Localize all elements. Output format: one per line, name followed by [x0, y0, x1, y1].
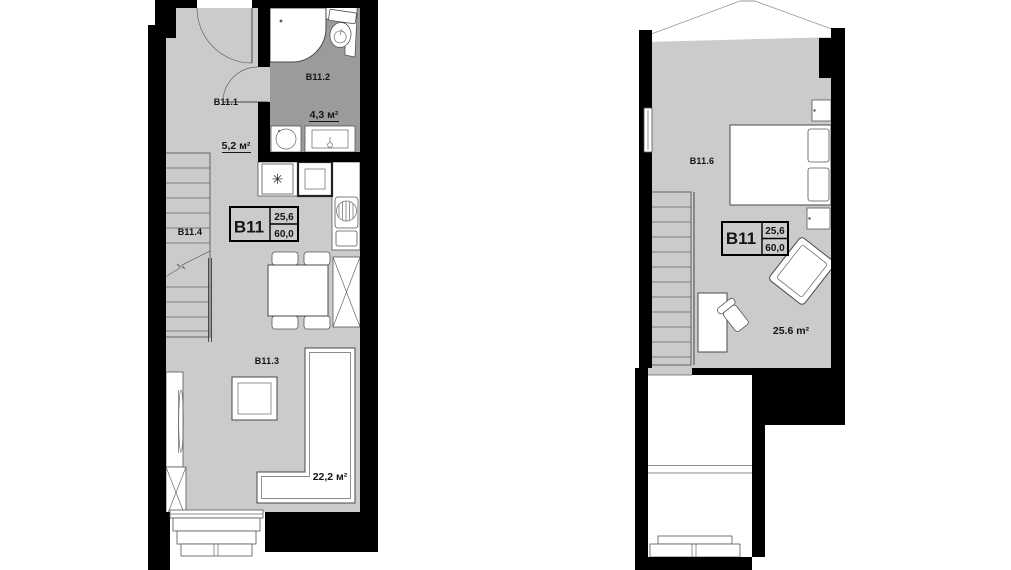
bed	[730, 125, 831, 205]
unit-area-value: 25,6	[274, 212, 294, 223]
bathroom-door-threshold	[258, 67, 270, 102]
unit-total-value: 60,0	[274, 229, 294, 240]
lower-floor-plan: ✳	[148, 0, 378, 570]
unit-card: B11 25,6 60,0	[230, 207, 298, 241]
desk	[698, 293, 727, 352]
kitchen-appliance	[298, 162, 332, 196]
chair	[304, 252, 330, 265]
window	[644, 108, 652, 152]
fridge-cabinet	[333, 257, 360, 327]
floor-strip	[648, 365, 692, 375]
room-label-b11-1: B11.1	[214, 97, 239, 107]
room-area-b11-6: 25.6 m²	[773, 325, 810, 337]
unit-total-value: 60,0	[765, 243, 785, 254]
stove-burner-icon: ✳	[272, 171, 284, 187]
entrance-steps	[650, 536, 740, 557]
pillow	[808, 129, 829, 162]
roof-slope-lines	[646, 1, 837, 36]
dining-table	[268, 265, 328, 316]
chair	[272, 316, 298, 329]
upper-floor-plan: B11 25,6 60,0 B11.6 25.6 m²	[635, 0, 845, 570]
pillow	[808, 168, 829, 201]
room-area-b11-2: 4,3 м²	[310, 109, 339, 121]
unit-card: B11 25,6 60,0	[722, 222, 788, 255]
room-area-b11-3: 22,2 м²	[313, 471, 348, 483]
room-label-b11-6: B11.6	[690, 156, 715, 166]
room-label-b11-4: B11.4	[178, 227, 203, 237]
entrance-steps	[173, 518, 260, 556]
unit-code: B11	[726, 229, 756, 248]
bathroom-sink	[305, 126, 355, 152]
room-label-b11-2: B11.2	[306, 72, 331, 82]
stove: ✳	[262, 164, 293, 194]
nightstand	[807, 208, 830, 229]
staircase	[165, 153, 212, 342]
chair	[304, 316, 330, 329]
floorplan-page: ✳	[0, 0, 1011, 570]
staircase	[647, 192, 694, 365]
room-label-b11-3: B11.3	[255, 356, 280, 366]
unit-code: B11	[234, 218, 264, 237]
chair	[272, 252, 298, 265]
tv-unit	[166, 372, 183, 467]
room-area-b11-1: 5,2 м²	[222, 140, 251, 152]
unit-area-value: 25,6	[765, 226, 785, 237]
shower-drain-icon	[280, 20, 283, 23]
coffee-table	[232, 377, 277, 420]
kitchen-sink	[335, 197, 358, 246]
void-landing-lines	[648, 375, 752, 473]
washing-machine	[271, 126, 301, 152]
nightstand	[812, 100, 831, 121]
